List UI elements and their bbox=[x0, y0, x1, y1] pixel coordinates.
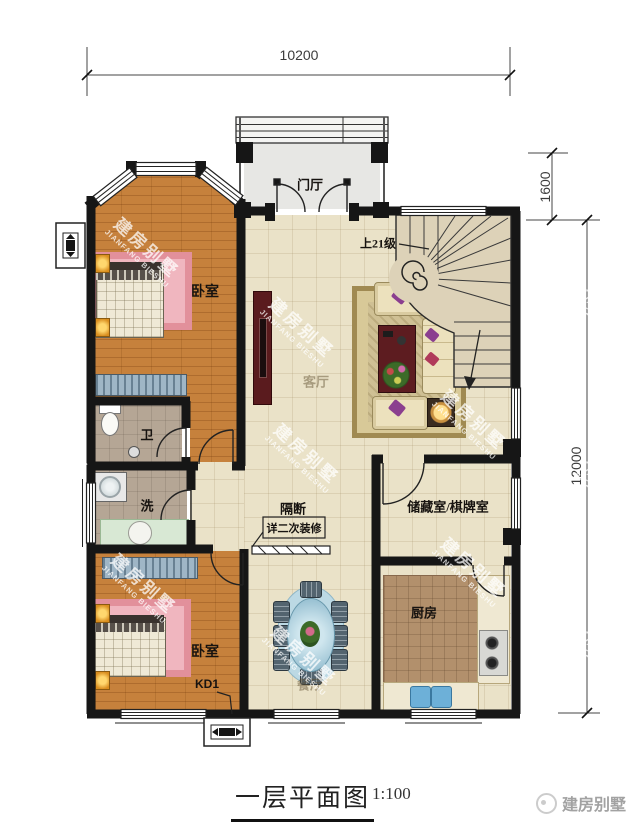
watermark: 建房别墅 JIANFANG BIESHU bbox=[573, 265, 640, 336]
bedroom-top-dresser bbox=[95, 374, 187, 396]
dim-overall-width: 10200 bbox=[280, 47, 319, 63]
tv-screen bbox=[259, 318, 267, 378]
dining-centerpiece bbox=[300, 621, 320, 647]
dining-chair bbox=[331, 601, 348, 623]
dining-chair bbox=[273, 649, 290, 671]
label-toilet: 卫 bbox=[140, 425, 153, 444]
label-kd1: KD1 bbox=[195, 677, 219, 691]
watermark-en: JIANFANG BIESHU bbox=[12, 426, 79, 488]
nightstand bbox=[95, 254, 110, 273]
brand-name: 建房别墅 bbox=[562, 791, 626, 815]
nightstand bbox=[95, 318, 110, 337]
wardrobe bbox=[102, 557, 198, 579]
label-wash: 洗 bbox=[140, 496, 153, 515]
nightstand bbox=[95, 604, 110, 623]
lamp-table bbox=[427, 398, 455, 427]
label-storage: 储藏室/棋牌室 bbox=[407, 497, 489, 516]
watermark: 建房别墅 JIANFANG BIESHU bbox=[12, 412, 92, 488]
label-kitchen: 厨房 bbox=[411, 603, 437, 622]
nightstand bbox=[95, 671, 110, 690]
floor-plan-page: 10200 1600 12000 门厅 上21级 卧室 客厅 卫 洗 隔断 详二… bbox=[0, 0, 640, 831]
stove-burner bbox=[485, 636, 499, 650]
washer-drum bbox=[99, 476, 121, 498]
watermark-en: JIANFANG BIESHU bbox=[573, 634, 618, 677]
label-entry: 门厅 bbox=[297, 175, 323, 194]
corridor-floor bbox=[190, 462, 244, 552]
watermark: 建房别墅 JIANFANG BIESHU bbox=[0, 247, 58, 323]
floor-drain bbox=[128, 446, 140, 458]
label-living: 客厅 bbox=[303, 372, 329, 391]
label-bedroom-bottom: 卧室 bbox=[191, 641, 219, 661]
brand-footer: 建房别墅 bbox=[536, 791, 626, 815]
dim-overall-depth: 12000 bbox=[568, 447, 584, 486]
dining-chair bbox=[273, 601, 290, 623]
dining-chair bbox=[300, 581, 322, 598]
label-dining: 餐厅 bbox=[297, 675, 323, 694]
lamp-table bbox=[427, 287, 455, 316]
watermark-cn: 建房别墅 bbox=[584, 265, 640, 324]
watermark-cn: 建房别墅 bbox=[0, 248, 57, 315]
watermark-en: JIANFANG BIESHU bbox=[0, 261, 45, 323]
brand-icon bbox=[536, 793, 557, 814]
label-stairs: 上21级 bbox=[360, 235, 396, 252]
drawing-scale: 1:100 bbox=[372, 784, 411, 804]
coffee-table-bowl bbox=[397, 336, 406, 345]
coffee-table-remote bbox=[383, 331, 393, 337]
coffee-table-flowers bbox=[380, 360, 412, 390]
kitchen-sink bbox=[410, 686, 431, 708]
watermark: 建房别墅 JIANFANG BIESHU bbox=[573, 607, 640, 678]
kitchen-tile-area bbox=[383, 575, 479, 684]
label-bedroom-top: 卧室 bbox=[191, 281, 219, 301]
bedroom-bottom-pillows bbox=[94, 623, 164, 632]
watermark-cn: 建房别墅 bbox=[584, 437, 640, 496]
watermark-en: JIANFANG BIESHU bbox=[573, 292, 618, 335]
kitchen-sink bbox=[431, 686, 452, 708]
wash-basin bbox=[128, 521, 152, 545]
dim-porch-depth: 1600 bbox=[537, 171, 553, 202]
dining-chair bbox=[331, 649, 348, 671]
label-partition: 隔断 bbox=[280, 499, 306, 518]
page-title: 一层平面图 bbox=[231, 778, 374, 822]
toilet-bowl bbox=[101, 412, 119, 436]
label-partition-note: 详二次装修 bbox=[267, 520, 322, 536]
stove-burner bbox=[485, 656, 499, 670]
watermark-cn: 建房别墅 bbox=[584, 607, 640, 666]
watermark-cn: 建房别墅 bbox=[19, 413, 91, 480]
